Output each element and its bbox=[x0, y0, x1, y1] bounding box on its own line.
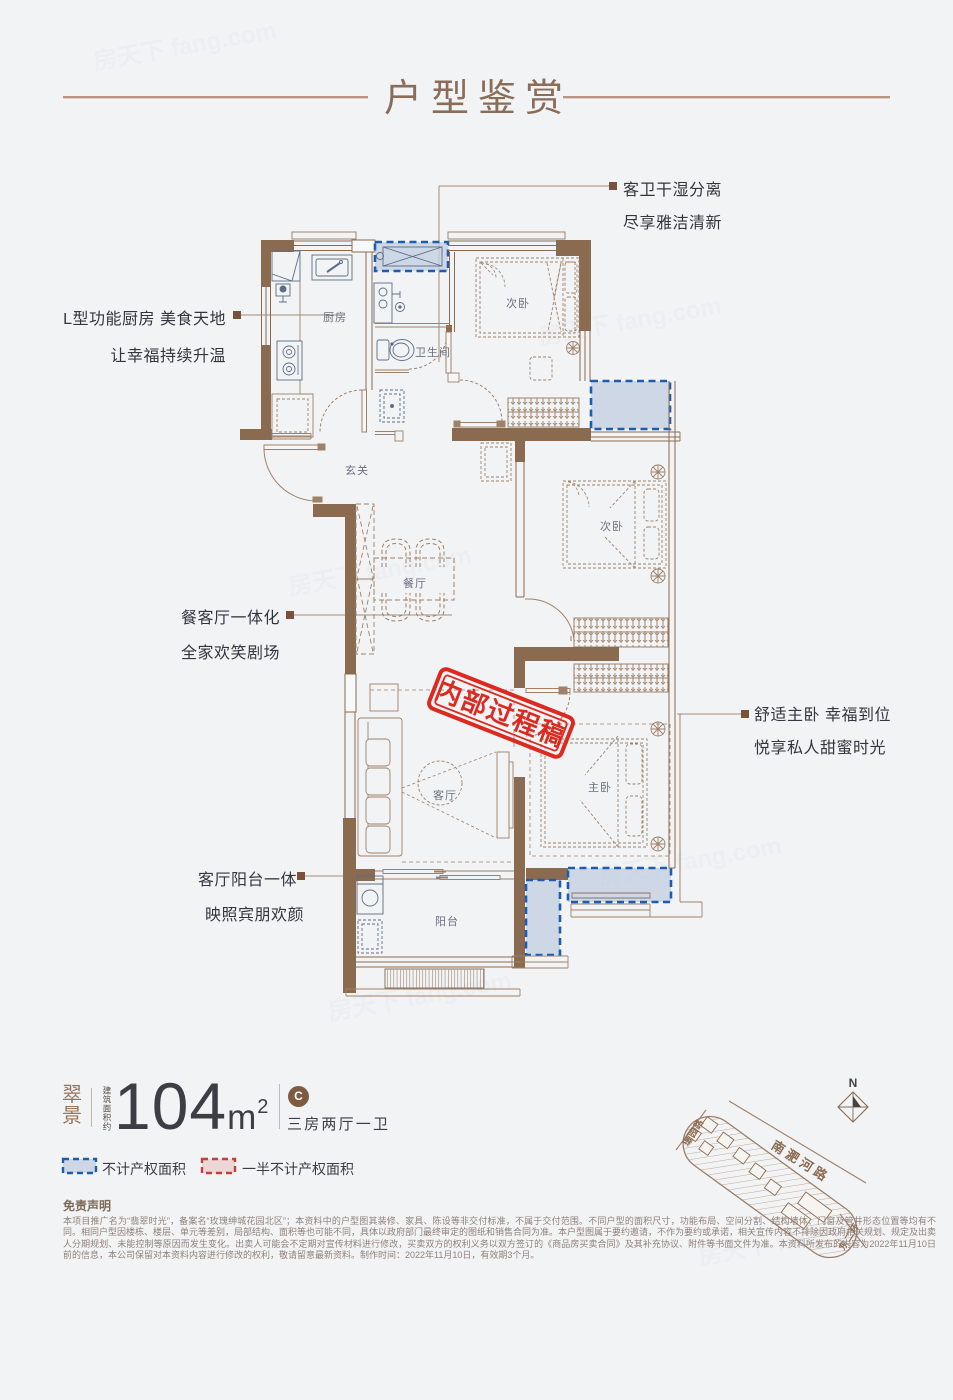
svg-text:N: N bbox=[849, 1076, 858, 1090]
svg-text:内部过程稿: 内部过程稿 bbox=[431, 674, 570, 752]
svg-text:房天下 fang.com: 房天下 fang.com bbox=[91, 16, 278, 76]
svg-text:阳台: 阳台 bbox=[435, 914, 459, 928]
svg-text:厨房: 厨房 bbox=[323, 311, 347, 324]
svg-text:餐厅: 餐厅 bbox=[403, 576, 427, 590]
svg-text:客厅: 客厅 bbox=[433, 788, 457, 802]
svg-text:次卧: 次卧 bbox=[600, 519, 624, 533]
svg-text:玄关: 玄关 bbox=[345, 463, 369, 477]
svg-text:卫生间: 卫生间 bbox=[415, 345, 451, 359]
svg-text:房天下 fang.com: 房天下 fang.com bbox=[286, 541, 473, 601]
svg-text:主卧: 主卧 bbox=[588, 781, 612, 794]
svg-text:次卧: 次卧 bbox=[506, 296, 530, 310]
svg-text:房天下 fang.com: 房天下 fang.com bbox=[536, 291, 723, 351]
